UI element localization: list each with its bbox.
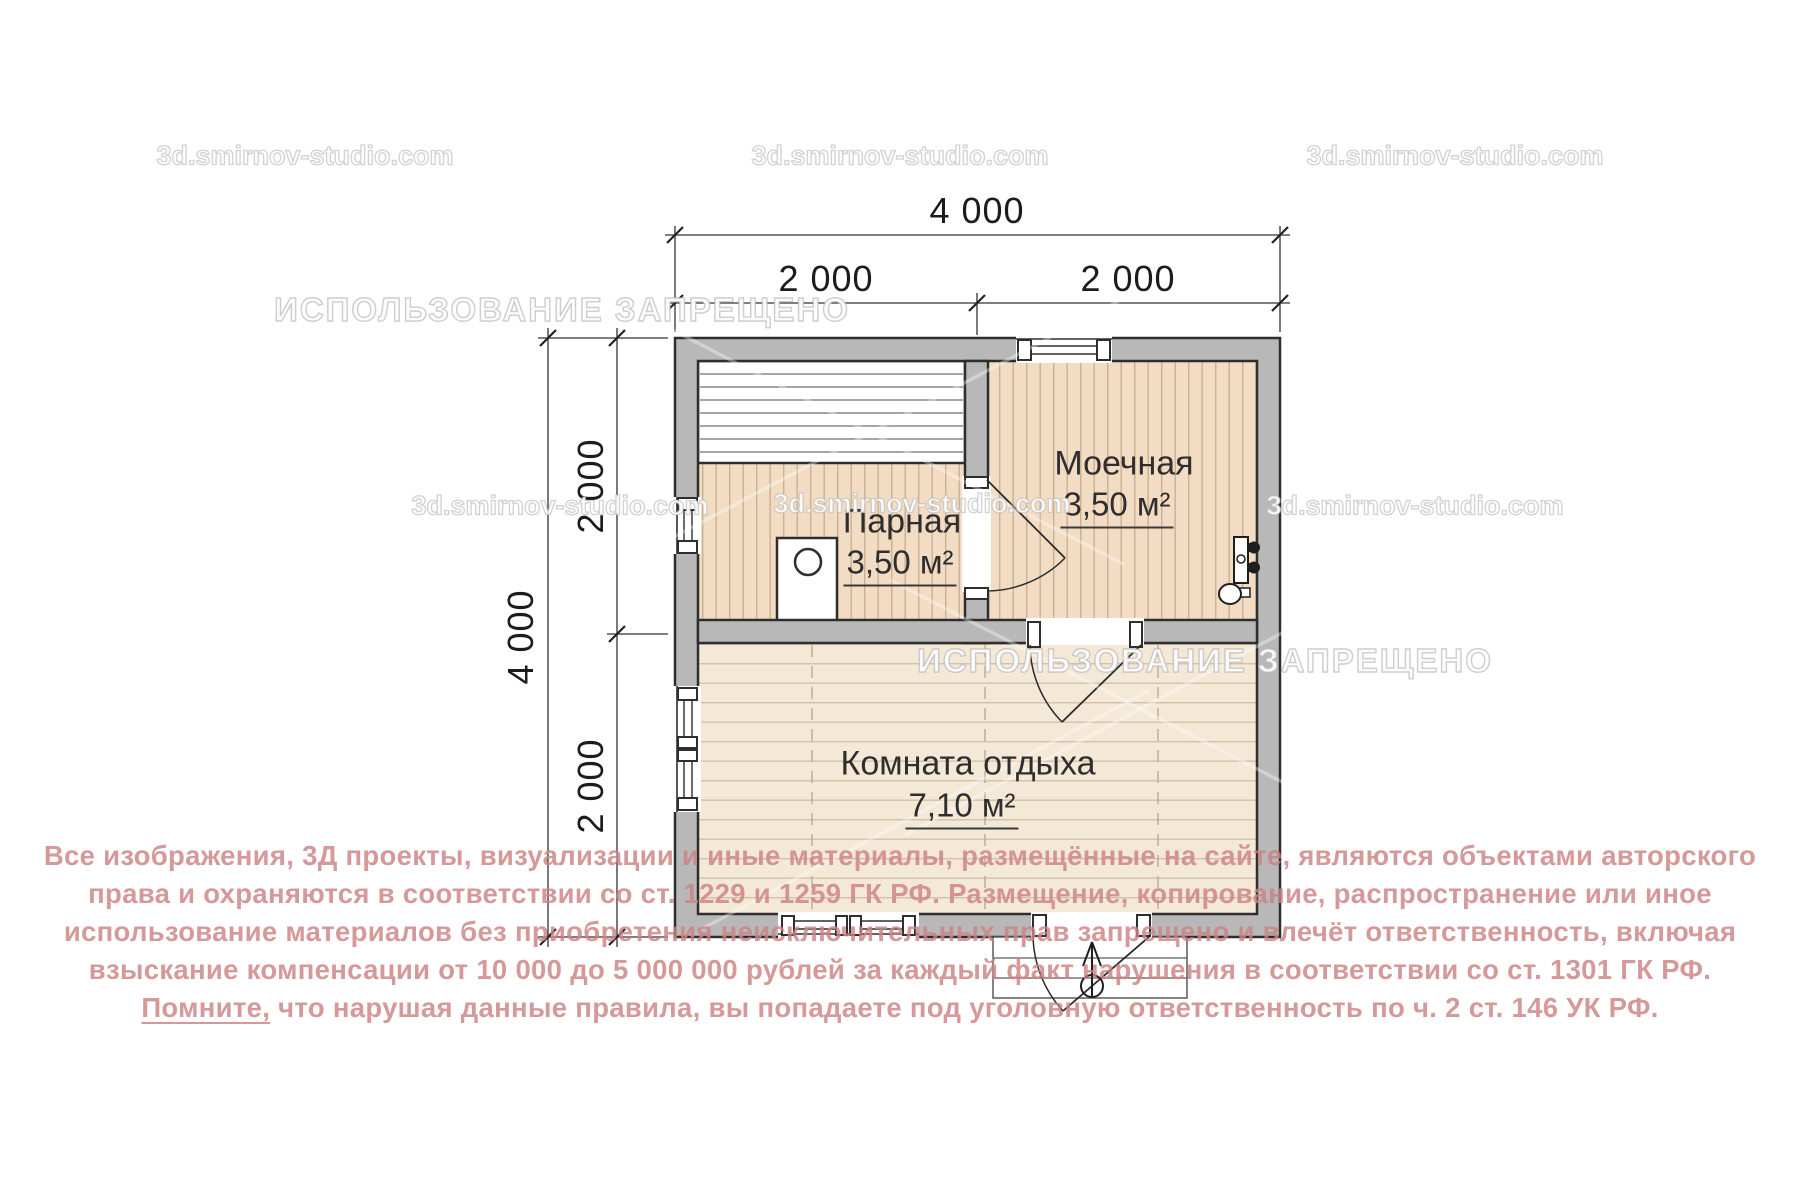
copyright-line-5-rest: что нарушая данные правила, вы попадаете…: [270, 992, 1658, 1023]
dim-top-total: 4 000: [929, 190, 1024, 232]
floor-plan-page: 4 000 2 000 2 000 4 000 2 000 2 000 Парн…: [0, 0, 1800, 1200]
site-watermark: 3d.smirnov-studio.com: [751, 141, 1048, 172]
dim-left-total: 4 000: [500, 589, 542, 684]
site-watermark: 3d.smirnov-studio.com: [1266, 491, 1563, 522]
room-area-moechnaya: 3,50 м²: [1060, 486, 1173, 529]
prohibited-watermark: ИСПОЛЬЗОВАНИЕ ЗАПРЕЩЕНО: [274, 291, 850, 329]
room-area-komnata: 7,10 м²: [905, 787, 1018, 830]
room-area-parnaya: 3,50 м²: [843, 544, 956, 587]
dim-left-lower: 2 000: [570, 738, 612, 833]
site-watermark: 3d.smirnov-studio.com: [773, 489, 1070, 520]
site-watermark: 3d.smirnov-studio.com: [156, 141, 453, 172]
room-label-komnata: Комната отдыха: [841, 745, 1096, 784]
window-left-komnata: [672, 686, 701, 812]
copyright-line-2: права и охраняются в соответствии со ст.…: [88, 878, 1712, 910]
wall-parnaya-moechnaya: [965, 361, 988, 478]
site-watermark: 3d.smirnov-studio.com: [411, 491, 708, 522]
wall-mid-left: [698, 620, 1028, 643]
room-label-moechnaya: Моечная: [1054, 445, 1193, 484]
copyright-line-3: использование материалов без приобретени…: [64, 916, 1736, 948]
copyright-line-5-underlined: Помните,: [141, 992, 270, 1023]
dim-top-right: 2 000: [1080, 258, 1175, 300]
prohibited-watermark: ИСПОЛЬЗОВАНИЕ ЗАПРЕЩЕНО: [917, 642, 1493, 680]
wall-mid-right: [1142, 620, 1257, 643]
site-watermark: 3d.smirnov-studio.com: [1306, 141, 1603, 172]
copyright-line-1: Все изображения, 3Д проекты, визуализаци…: [44, 840, 1756, 872]
copyright-line-5: Помните, что нарушая данные правила, вы …: [141, 992, 1658, 1024]
stove-symbol: [777, 538, 837, 622]
copyright-line-4: взыскание компенсации от 10 000 до 5 000…: [89, 954, 1711, 986]
